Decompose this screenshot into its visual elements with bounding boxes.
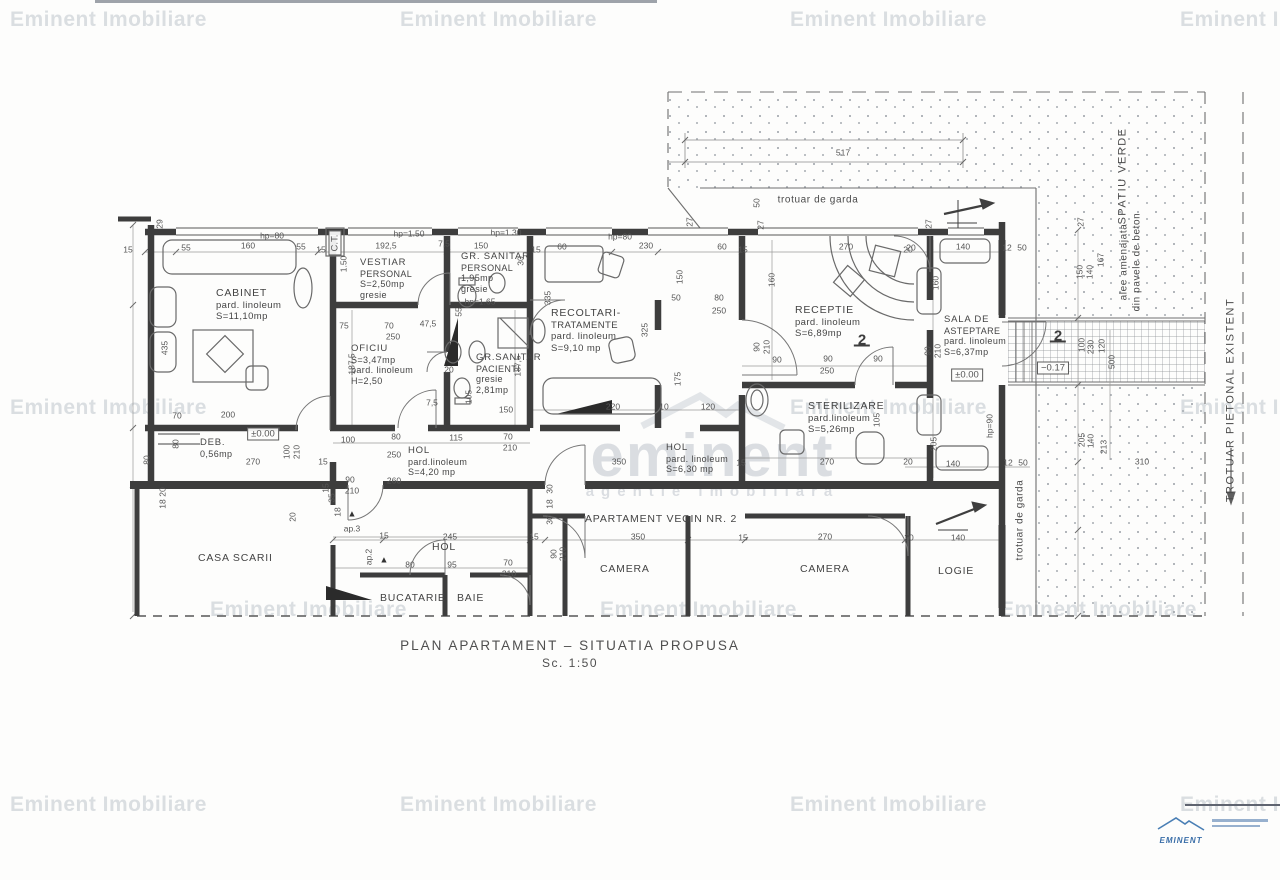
- windows: [176, 228, 1005, 608]
- section-arrow-bottom: [936, 502, 986, 530]
- paved-alley: [1008, 318, 1205, 385]
- furniture: [150, 228, 990, 470]
- floorplan-drawing: [0, 0, 1280, 880]
- agency-logo-block: EMINENT: [1150, 804, 1280, 845]
- door-swings: [296, 236, 1046, 605]
- scanned-floorplan-page: Eminent ImobiliareEminent ImobiliareEmin…: [0, 0, 1280, 880]
- drawing-scale: Sc. 1:50: [330, 656, 810, 670]
- agency-logo-tagline: [1212, 819, 1268, 830]
- signature-line: [1185, 804, 1280, 806]
- sidewalk-direction-arrow: [1227, 448, 1235, 504]
- agency-logo-text: EMINENT: [1156, 836, 1206, 845]
- walls: [118, 219, 1005, 616]
- section-arrow-top: [944, 199, 994, 228]
- drawing-title: PLAN APARTAMENT – SITUATIA PROPUSA: [330, 638, 810, 653]
- agency-logo-roof-icon: [1156, 815, 1206, 831]
- drawing-title-block: PLAN APARTAMENT – SITUATIA PROPUSA Sc. 1…: [330, 638, 810, 670]
- dimension-lines: [130, 222, 1110, 619]
